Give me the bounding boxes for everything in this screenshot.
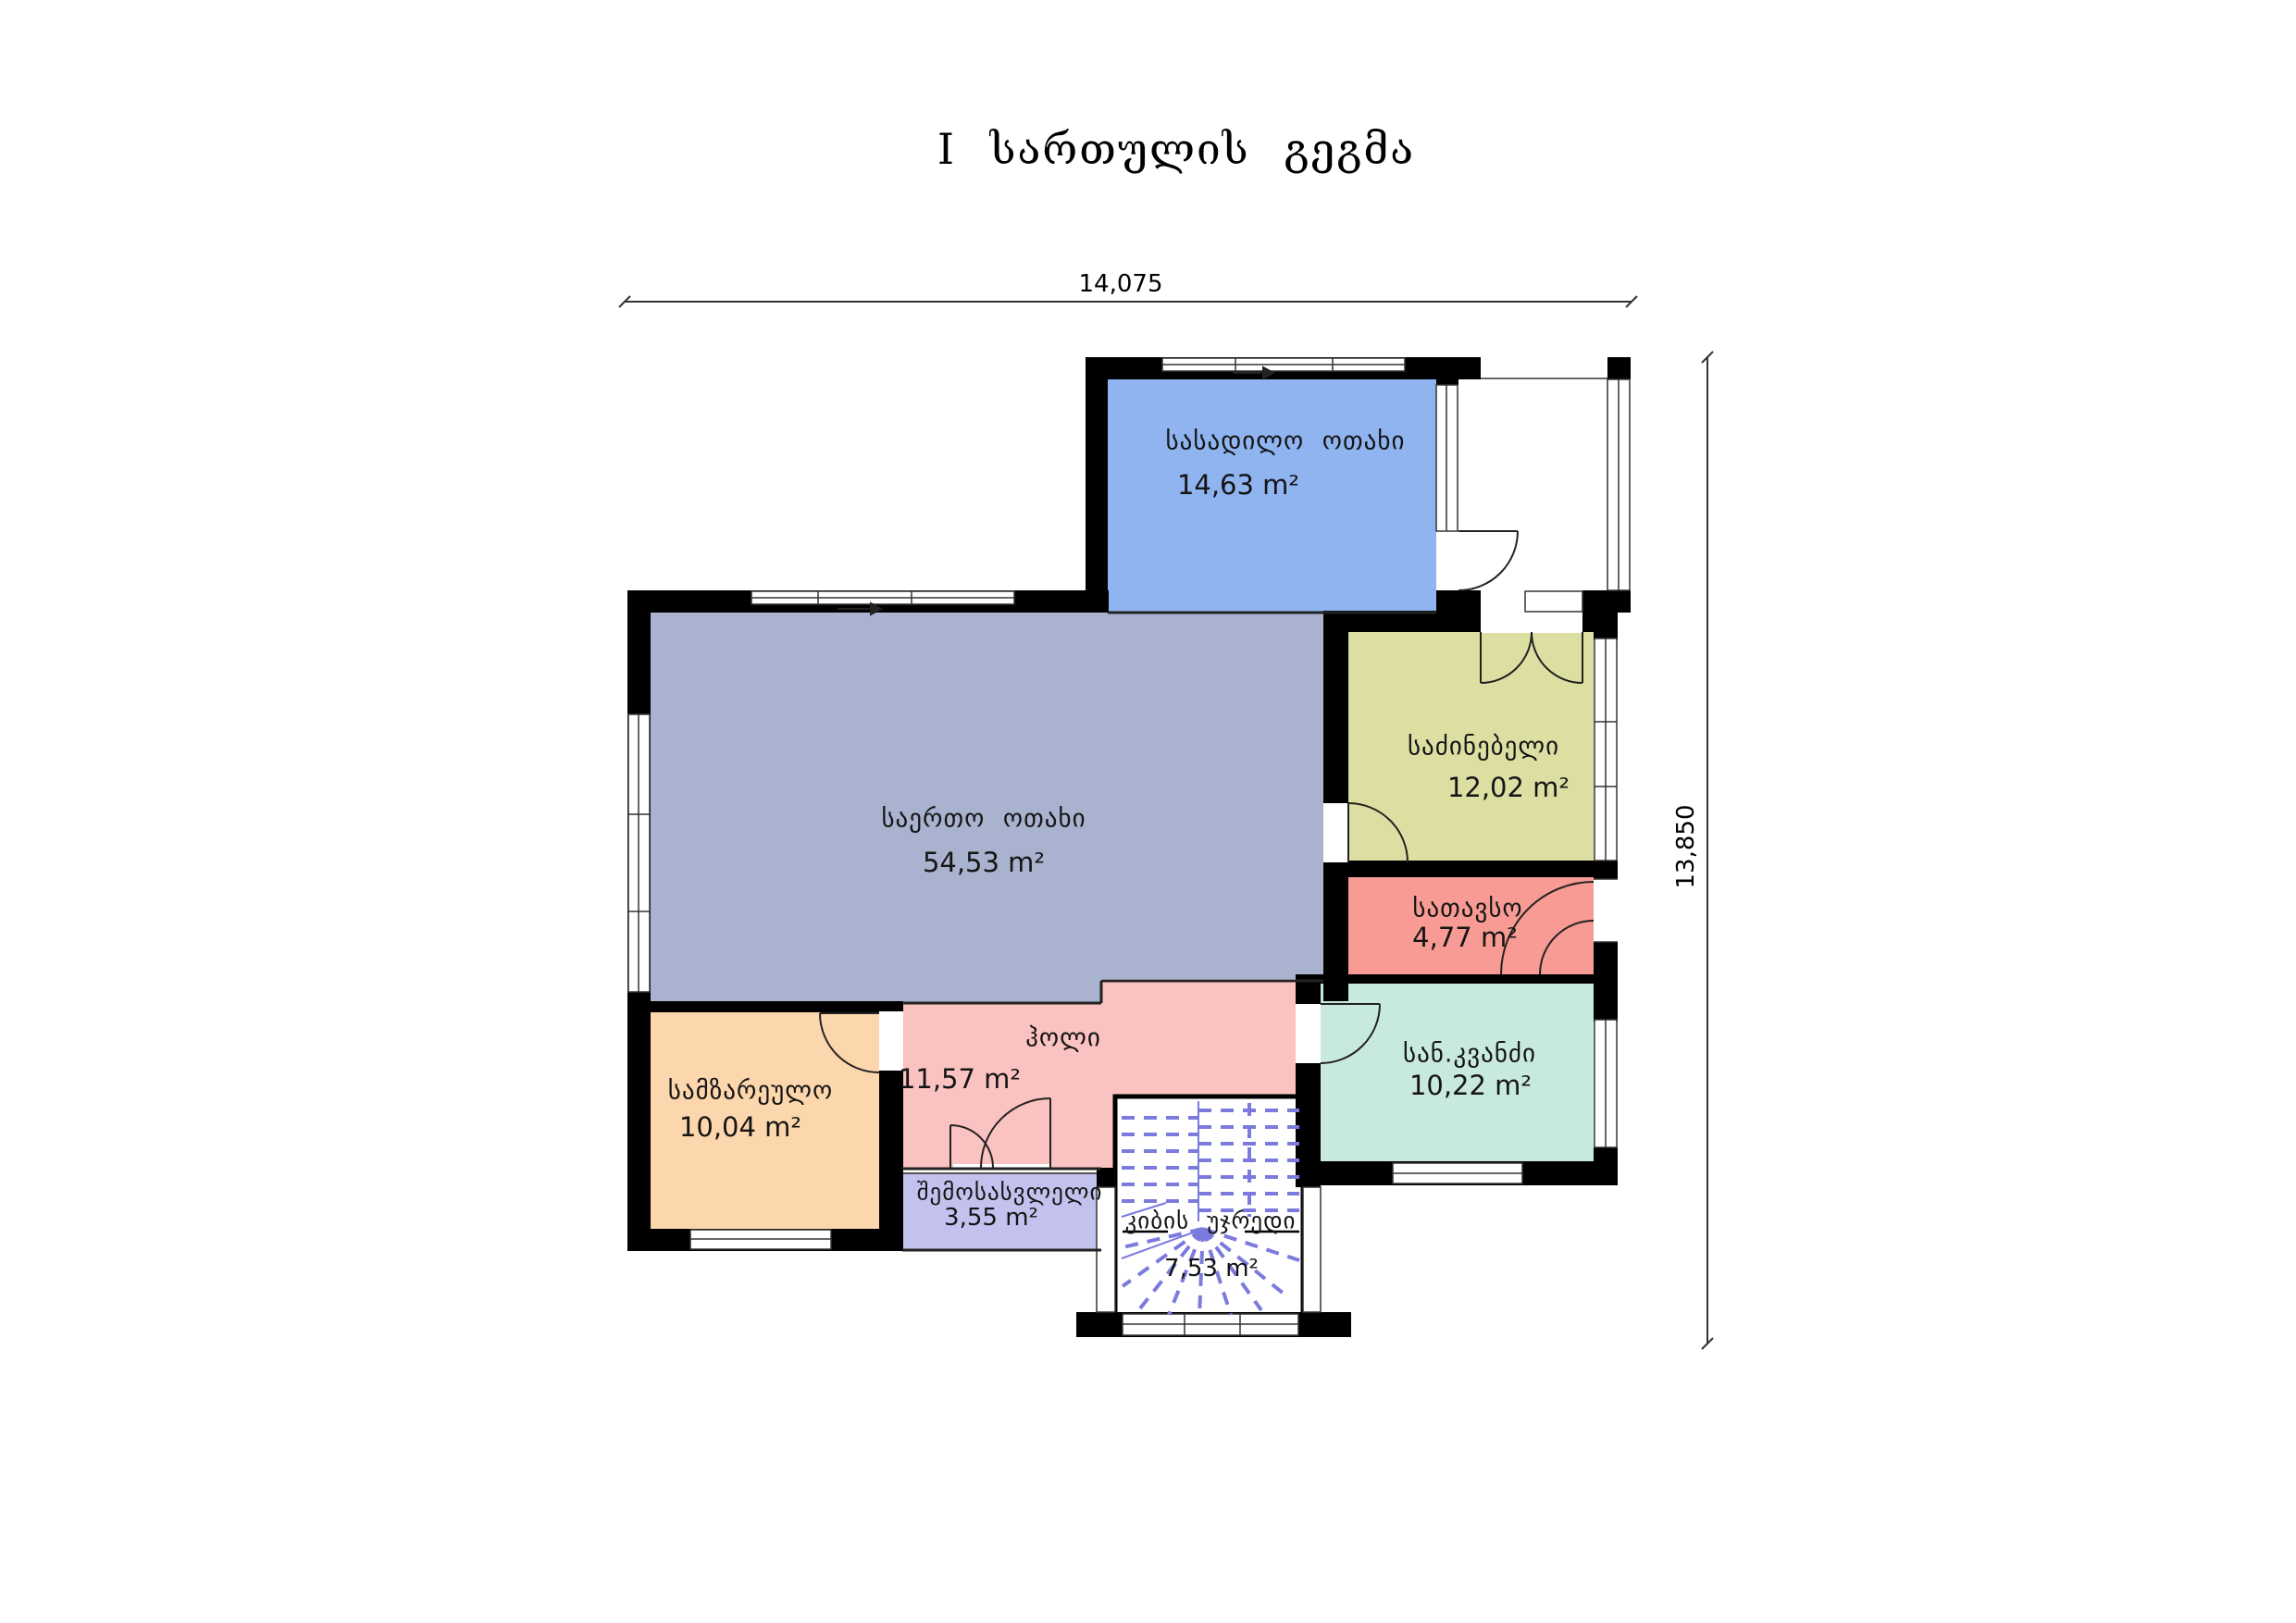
page-title: I სართულის გეგმა [937,124,1415,174]
room-label-dining: სასადილო ოთახი [1166,427,1406,456]
room-label-kitchen: სამზარეულო [668,1077,833,1106]
room-label-entrance: შემოსასვლელი [917,1179,1103,1206]
room-fill-hall1 [1101,981,1296,1096]
room-area-stairs: 7,53 m² [1164,1255,1259,1282]
room-area-hall: 11,57 m² [899,1063,1021,1095]
room-label-stairs: კიბის უჯრედი [1125,1208,1297,1234]
room-fill-living2 [651,979,1101,1003]
room-label-sanitary: სან.კვანძი [1403,1040,1536,1069]
dimension-height-label: 13,850 [1672,805,1700,889]
room-area-living: 54,53 m² [923,847,1045,878]
floor-plan-drawing [0,0,2296,1623]
room-area-entrance: 3,55 m² [944,1204,1038,1232]
room-fill-hall3 [902,1096,1115,1168]
room-area-storage: 4,77 m² [1412,922,1518,953]
floor-plan-page: I სართულის გეგმა 14,075 13,850 სასადილო … [0,0,2296,1623]
dimension-width-label: 14,075 [1079,270,1163,298]
room-area-dining: 14,63 m² [1177,469,1299,501]
room-label-bedroom: საძინებელი [1408,733,1559,762]
room-label-hall: ჰოლი [1025,1024,1101,1053]
room-label-living: საერთო ოთახი [881,805,1086,834]
room-area-bedroom: 12,02 m² [1447,772,1570,803]
room-area-kitchen: 10,04 m² [679,1111,801,1143]
room-fill-living [651,613,1323,979]
room-label-storage: სათავსო [1412,895,1522,923]
room-area-sanitary: 10,22 m² [1409,1070,1532,1101]
